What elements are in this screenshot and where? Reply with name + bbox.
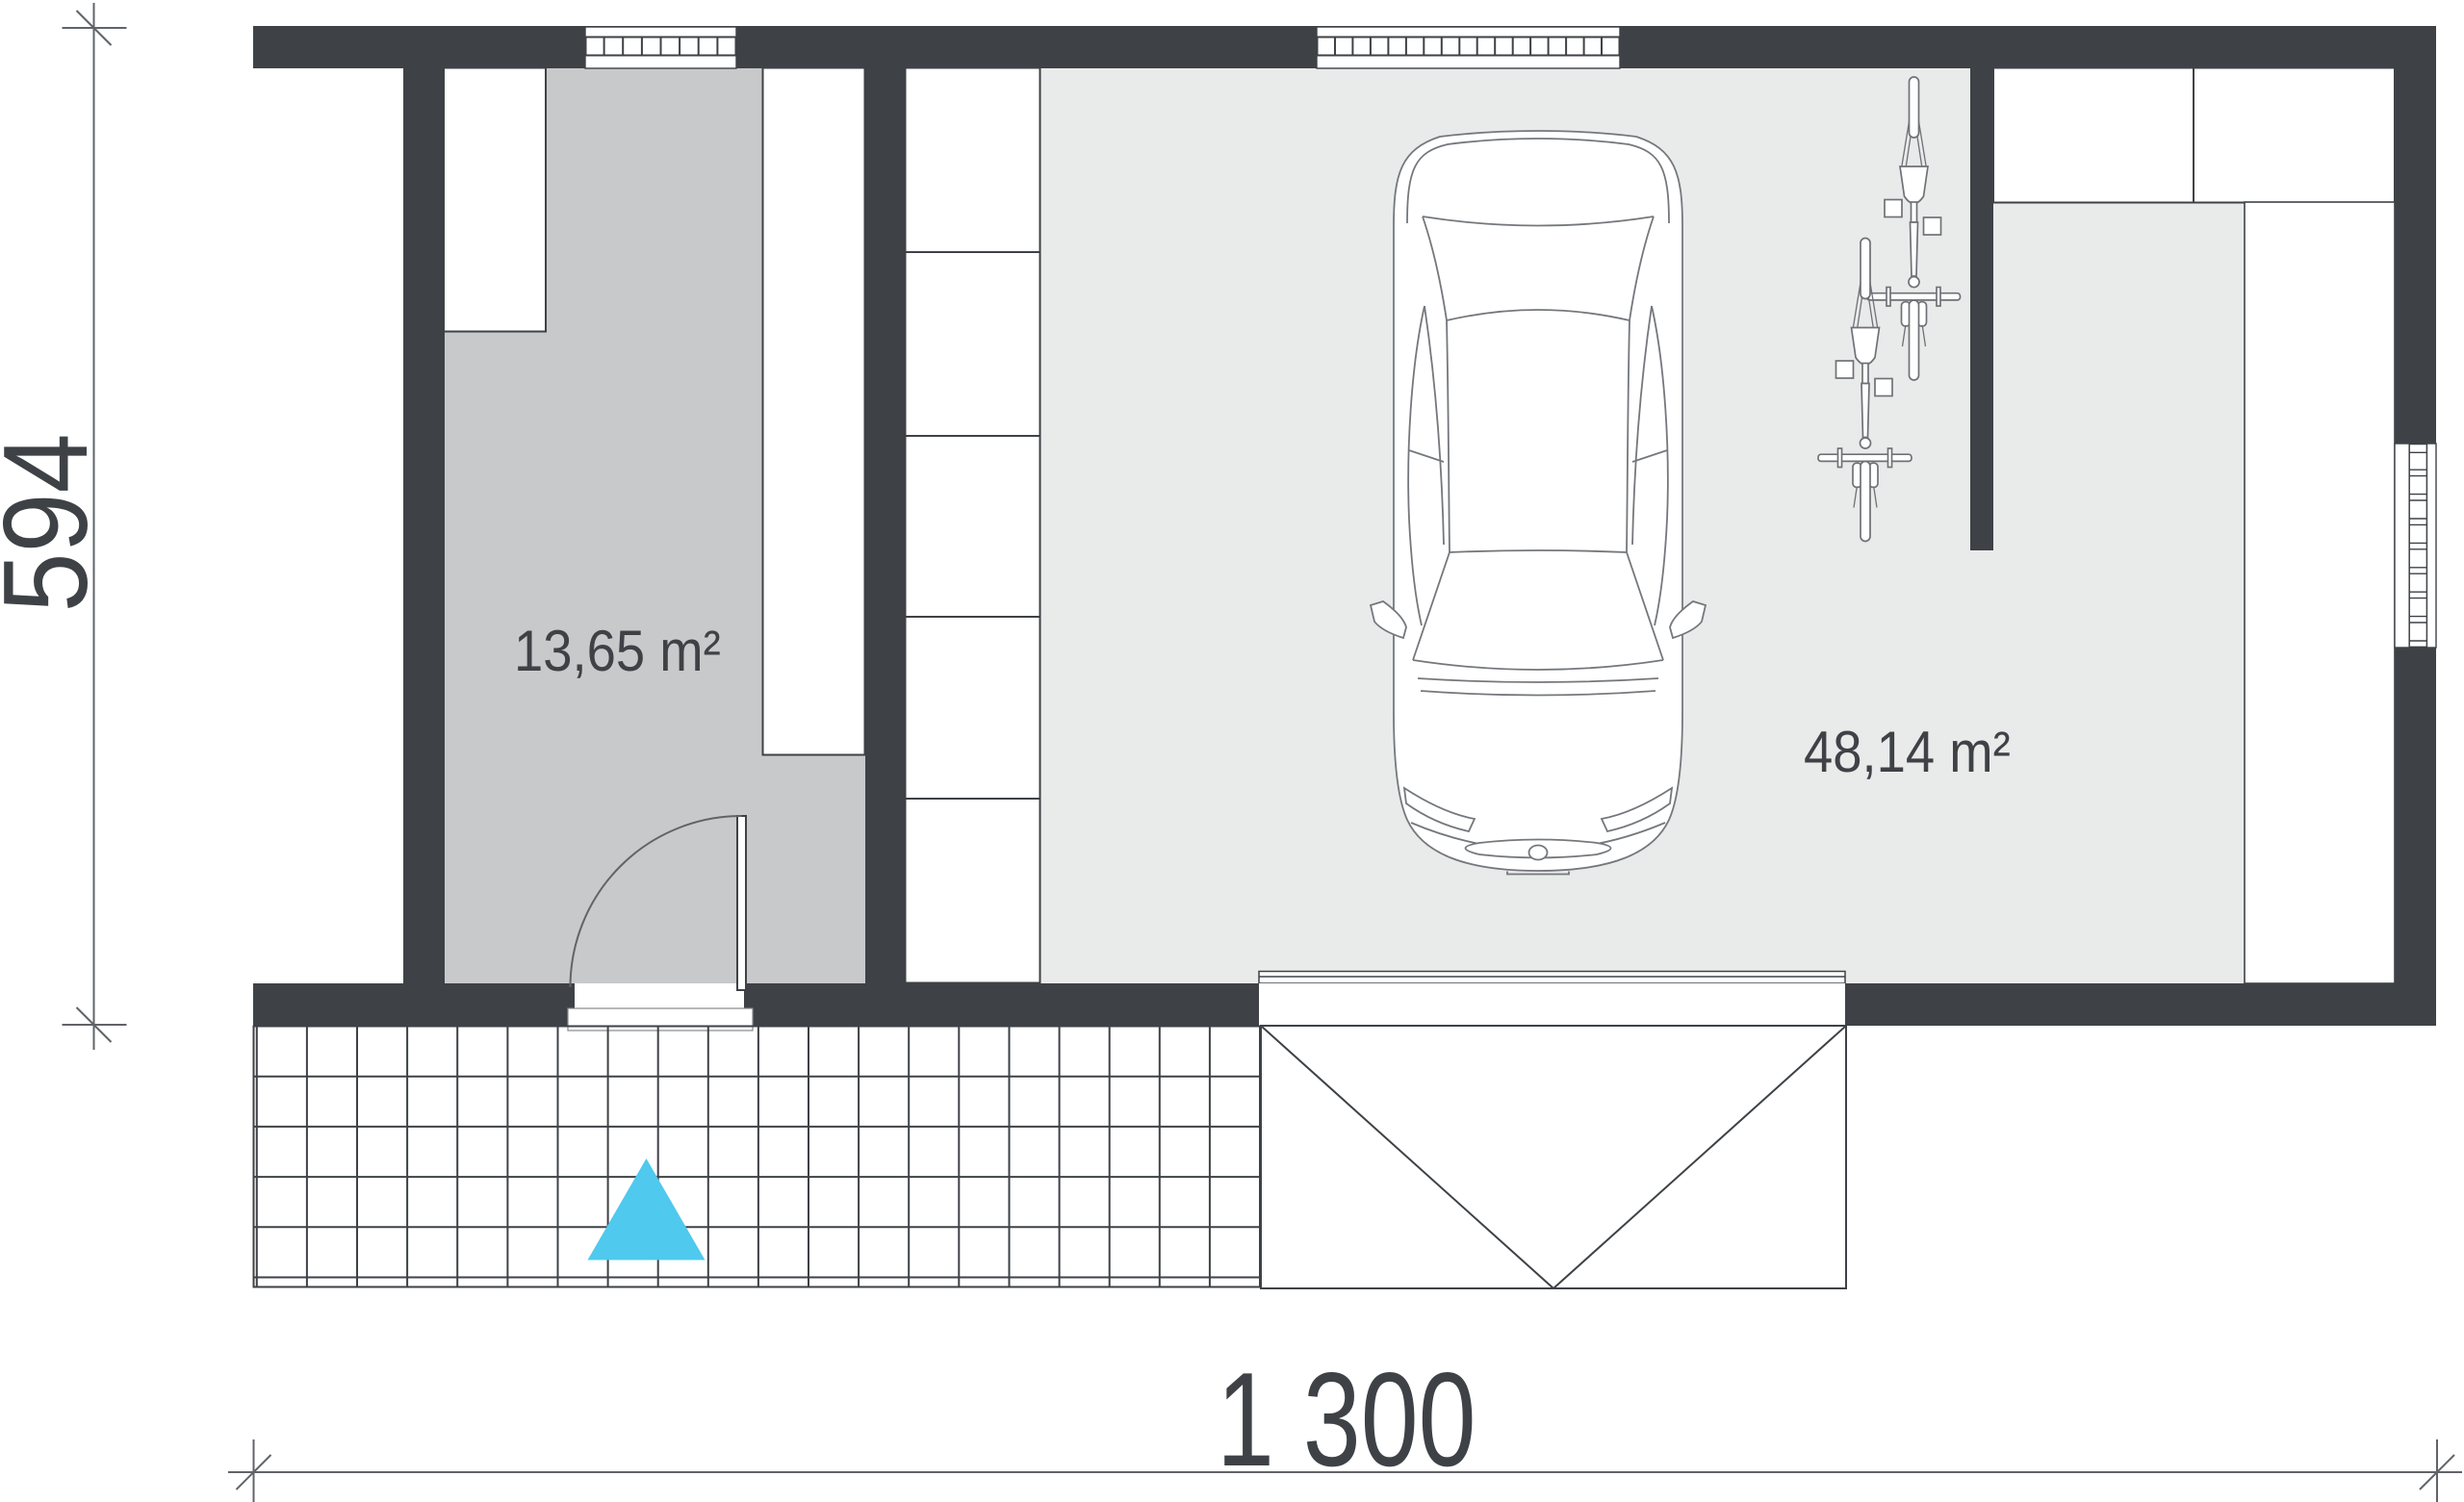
svg-text:48,14 m²: 48,14 m² [1804,721,2011,785]
svg-text:1 300: 1 300 [1217,1345,1476,1494]
svg-text:13,65 m²: 13,65 m² [514,620,721,684]
svg-text:594: 594 [0,433,112,612]
